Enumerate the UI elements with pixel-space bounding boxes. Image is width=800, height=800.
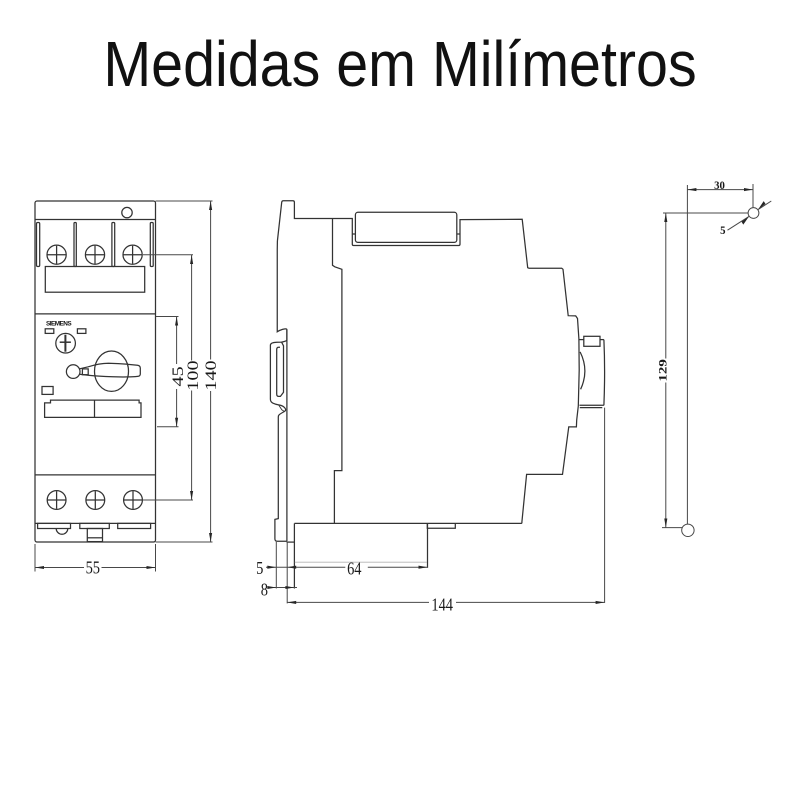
- svg-text:129: 129: [656, 359, 669, 382]
- svg-text:30: 30: [714, 179, 725, 192]
- svg-text:144: 144: [431, 594, 453, 615]
- svg-text:5: 5: [720, 225, 726, 238]
- svg-text:100: 100: [184, 360, 201, 390]
- svg-text:140: 140: [202, 360, 219, 390]
- svg-text:8: 8: [261, 579, 268, 600]
- svg-text:5: 5: [256, 558, 263, 579]
- svg-text:64: 64: [347, 558, 361, 579]
- svg-text:SIEMENS: SIEMENS: [46, 321, 72, 328]
- svg-text:55: 55: [86, 557, 100, 578]
